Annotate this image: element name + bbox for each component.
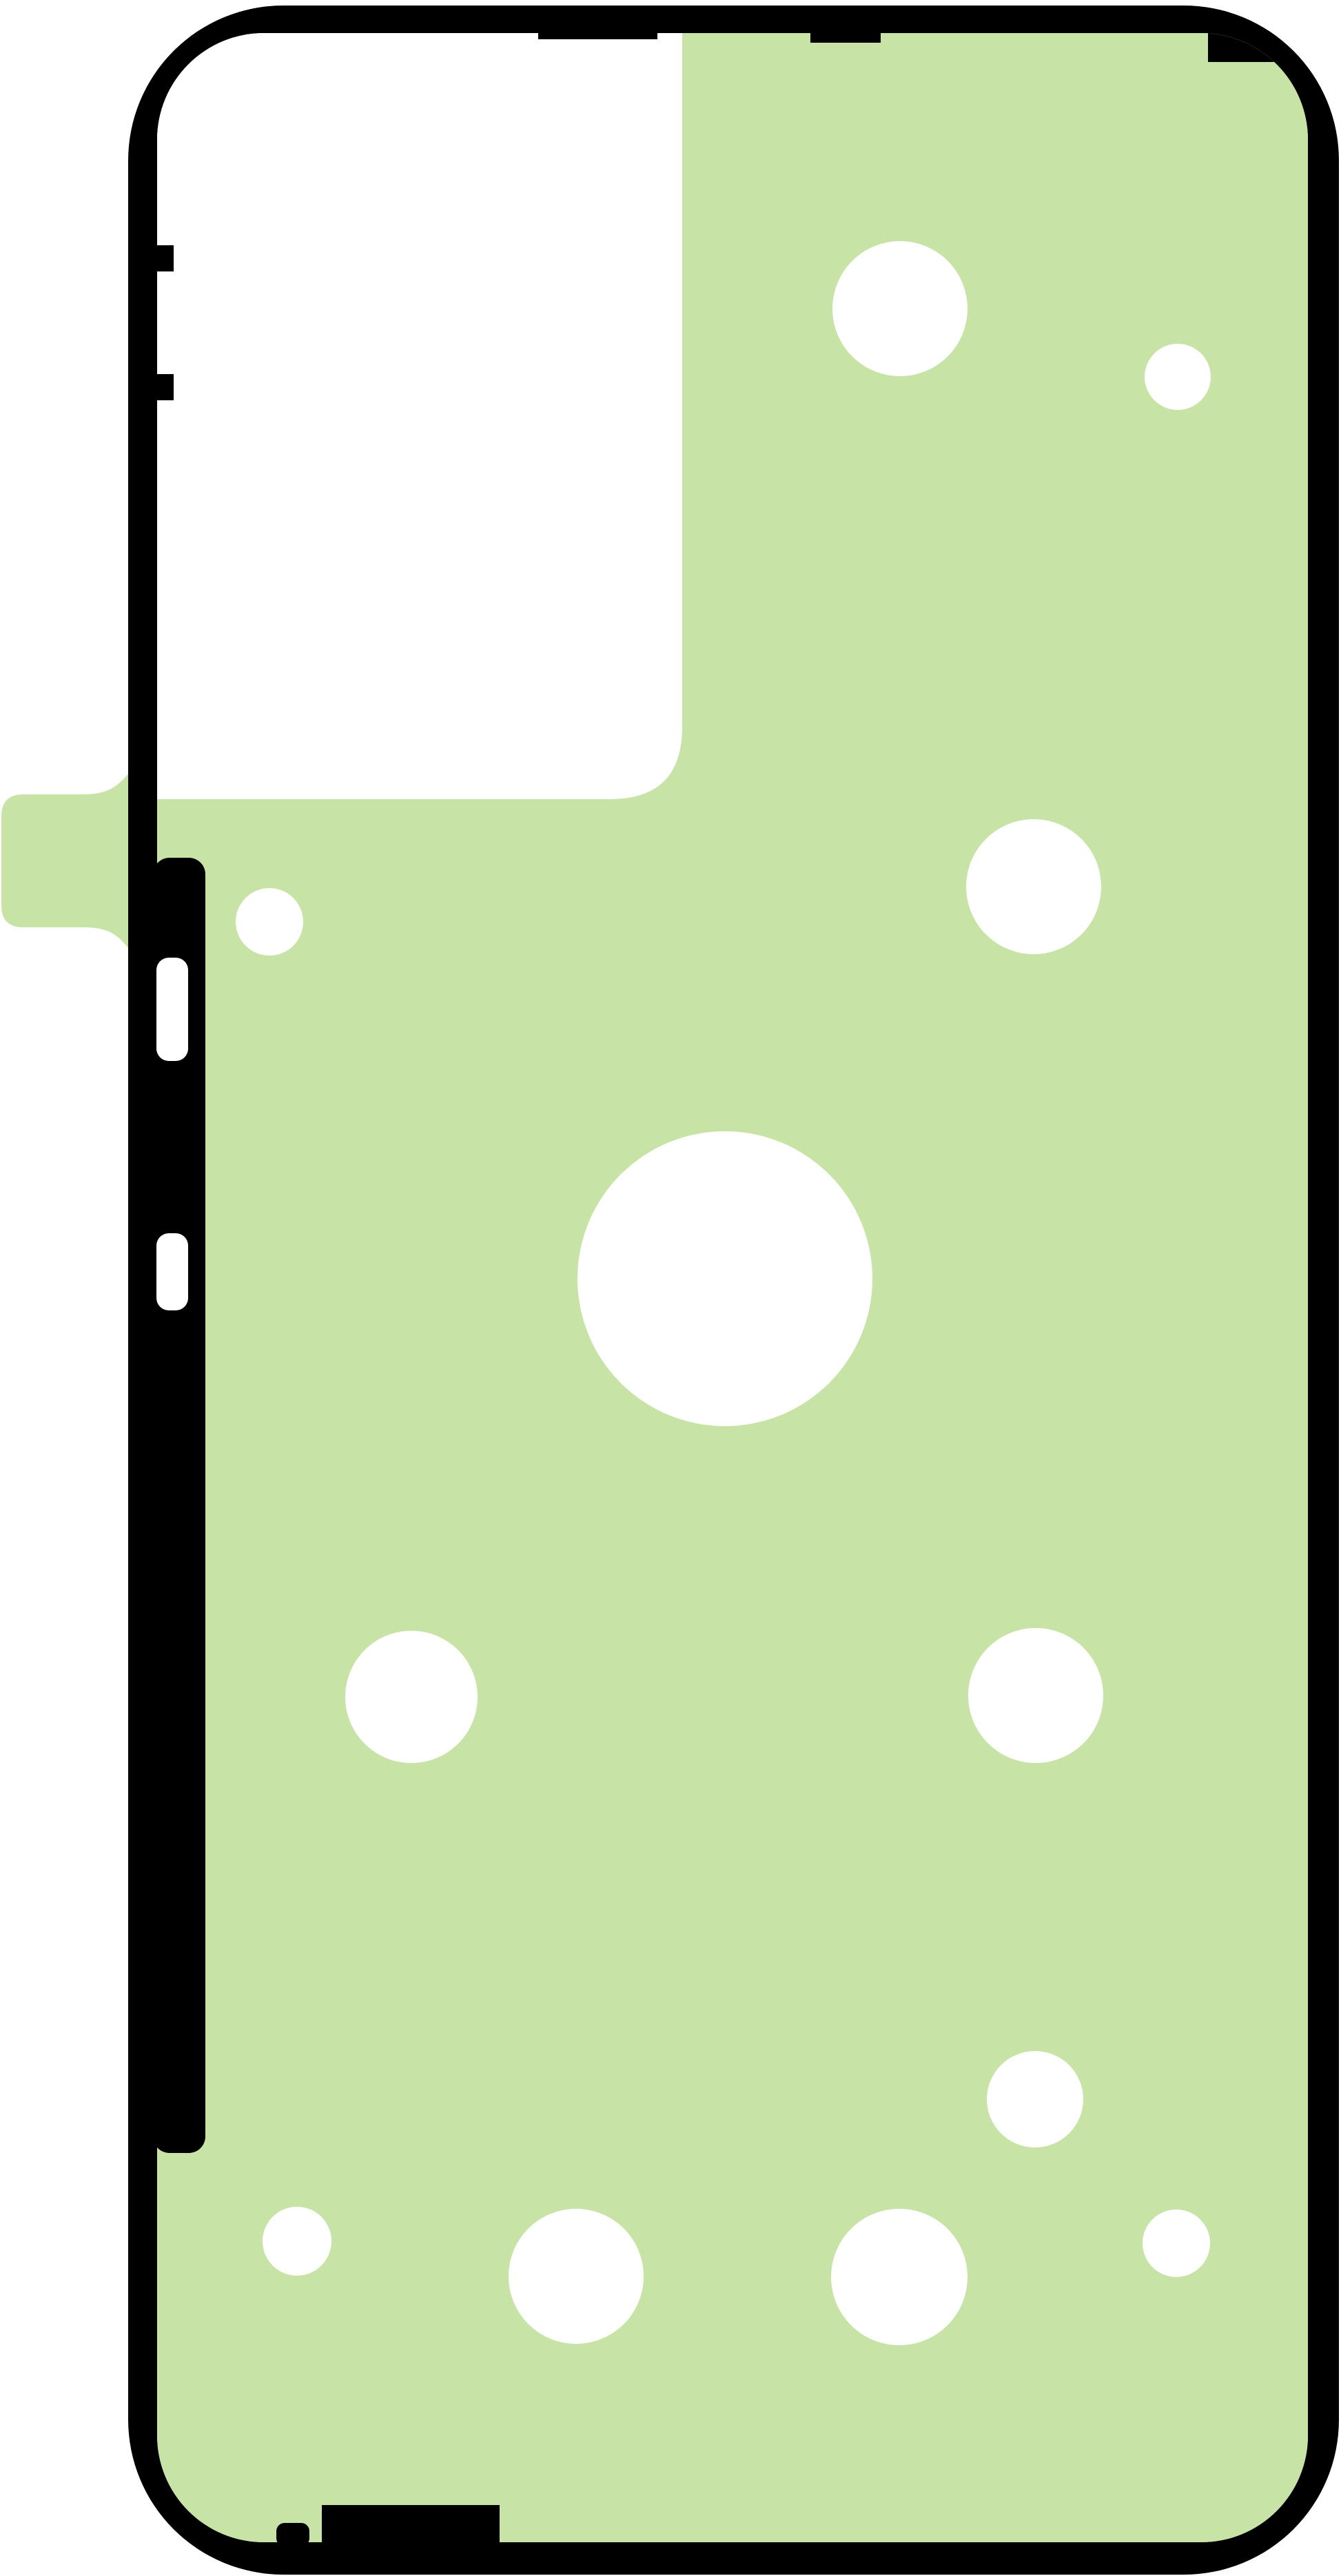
sticker-illustration <box>0 0 1341 2576</box>
hole-top-center <box>832 241 968 376</box>
rail-slot-cutout <box>156 958 188 1061</box>
hole-right-lower-small <box>987 2051 1083 2147</box>
hole-center-large <box>577 1131 872 1426</box>
hole-right-middle <box>968 1628 1103 1763</box>
adhesive-sticker-graphic <box>0 0 1341 2576</box>
left-edge-notch <box>156 374 174 400</box>
hole-bottom-left-small <box>263 2207 331 2276</box>
hole-bottom-center <box>509 2209 644 2344</box>
hole-left-below-camera <box>236 888 303 956</box>
hole-left-middle <box>345 1631 478 1763</box>
left-edge-notch <box>156 245 174 271</box>
hole-bottom-right-large <box>831 2209 968 2345</box>
rail-slot-cutout <box>156 1233 188 1310</box>
hole-right-upper <box>966 819 1101 954</box>
pull-tab <box>1 770 131 952</box>
camera-cutout <box>157 33 682 799</box>
hole-bottom-right-small <box>1143 2209 1210 2277</box>
hole-top-right-small <box>1145 344 1211 410</box>
